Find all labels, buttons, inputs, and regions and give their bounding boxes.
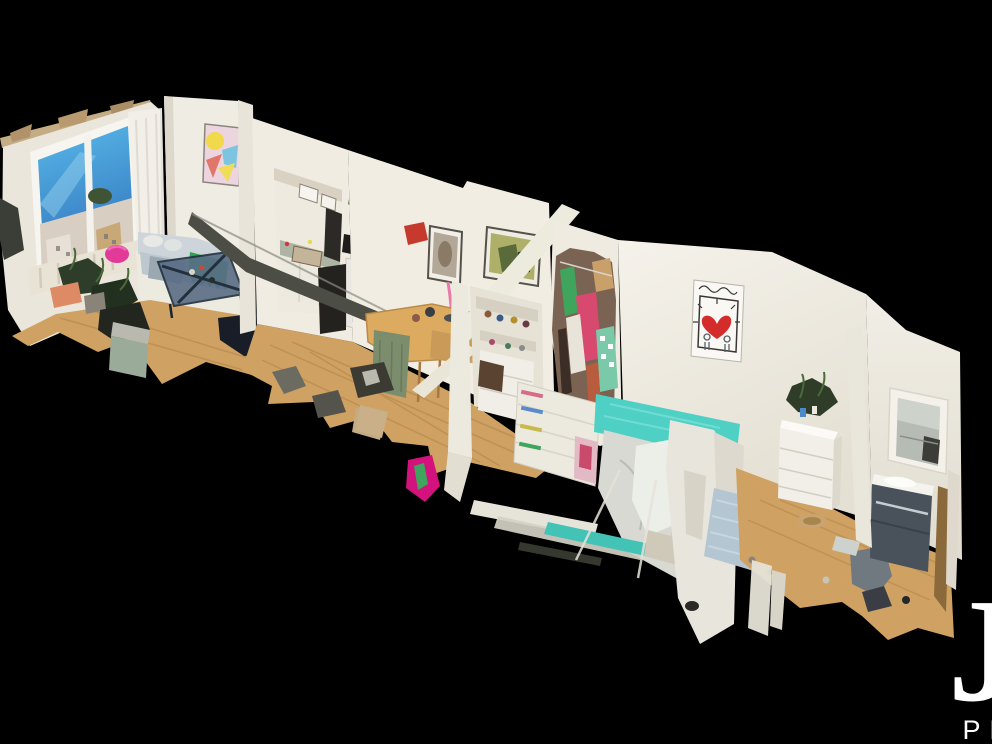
kitchen-chair bbox=[324, 208, 342, 262]
pink-pouf bbox=[105, 245, 129, 263]
heart-artwork bbox=[691, 280, 744, 362]
bathroom-mirror bbox=[888, 388, 948, 474]
storage-boxes bbox=[109, 322, 150, 378]
framed-portrait bbox=[428, 226, 462, 284]
vanity bbox=[870, 474, 934, 572]
apartment-3d-scan bbox=[0, 0, 992, 744]
brand-watermark: J PR bbox=[948, 588, 992, 744]
pet-basket bbox=[797, 514, 827, 528]
brand-letter: J bbox=[948, 588, 992, 715]
dollhouse-viewer[interactable]: J PR bbox=[0, 0, 992, 744]
white-dresser bbox=[778, 420, 842, 510]
abstract-painting bbox=[203, 124, 241, 186]
